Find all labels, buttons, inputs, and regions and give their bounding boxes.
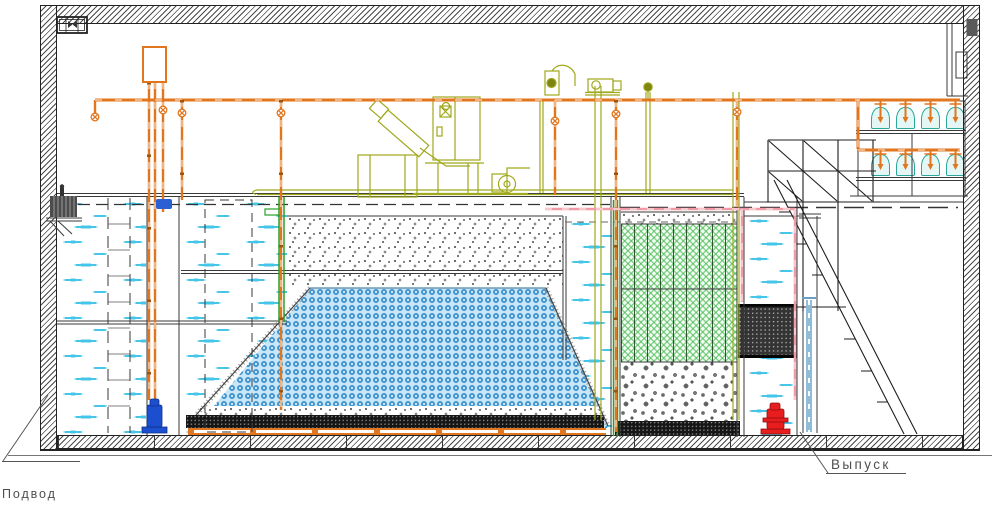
linework-overlay (0, 0, 1000, 512)
dosing-tank (143, 47, 166, 82)
inlet-label: Подвод сточных вод на очистку (2, 463, 62, 512)
pipe-clamp (156, 199, 172, 209)
valve-icons (91, 106, 741, 125)
recirculation-pipe-pink (545, 209, 795, 400)
outlet-pump (761, 403, 790, 434)
inlet-label-line1: Подвод (2, 488, 62, 500)
treatment-plant-section-drawing: Подвод сточных вод на очистку Выпуск (0, 0, 1000, 512)
access-ladder (108, 198, 252, 433)
outlet-label: Выпуск (831, 459, 891, 471)
ceiling-beam-block (967, 19, 978, 36)
stairs-and-railing (744, 140, 917, 434)
blower-rack-frame (850, 24, 968, 196)
structure-lines (57, 194, 963, 438)
air-piping-orange (91, 47, 961, 432)
screen-equipment-group (253, 65, 739, 420)
level-lines (60, 205, 958, 223)
inlet-pump (142, 399, 167, 433)
green-guide-pipes (265, 197, 618, 436)
inlet-sluice-gate (46, 184, 82, 236)
outlet-pipe-lightblue (802, 298, 816, 432)
blower-arrows (878, 117, 959, 170)
exhaust-fan-icon (57, 17, 87, 33)
media-bed-slopes (196, 288, 608, 426)
